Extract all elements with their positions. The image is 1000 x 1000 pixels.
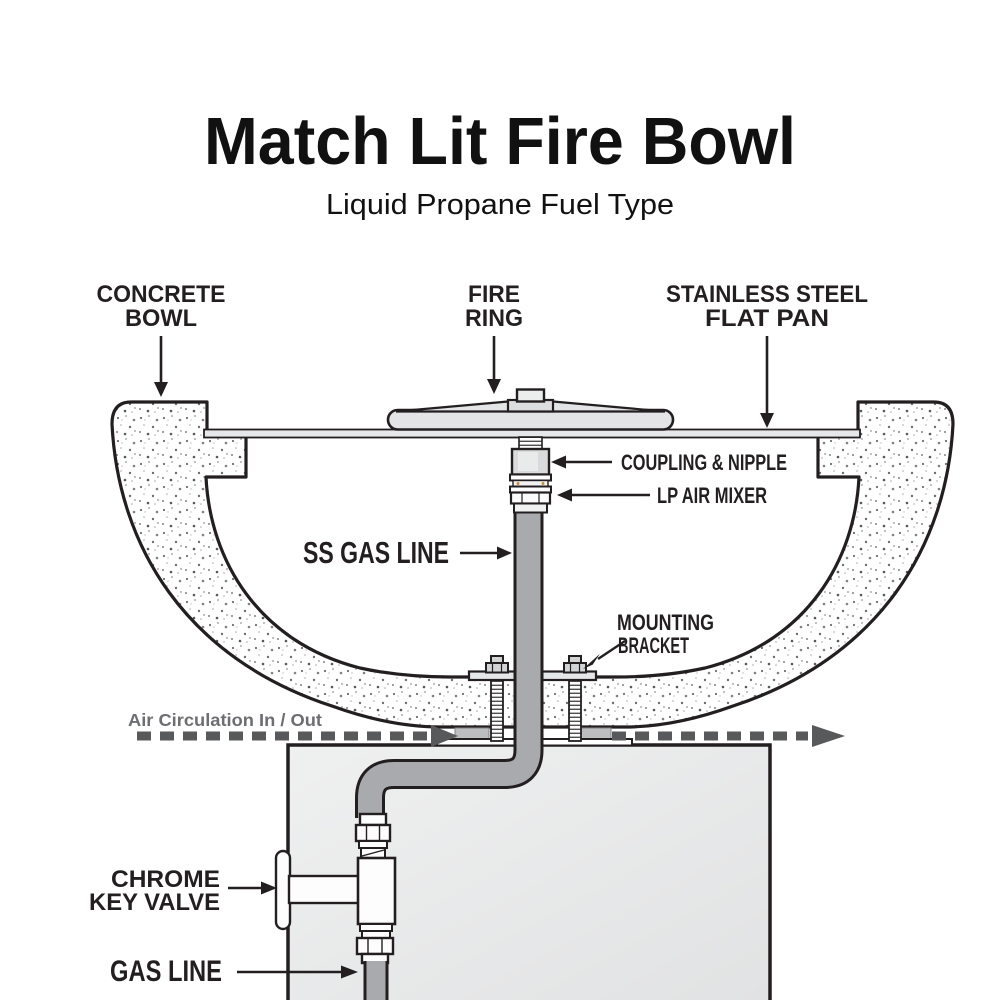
air-arrowhead-right [812, 725, 845, 747]
concrete-bowl-label-line2: BOWL [125, 305, 197, 332]
gas-line-label: GAS LINE [110, 955, 222, 988]
threaded-rod-left [491, 679, 503, 741]
chrome-key-valve-label-line2: KEY VALVE [89, 889, 220, 916]
lp-air-mixer-collar [514, 504, 547, 513]
valve-ring-a [359, 841, 387, 848]
flat-pan-label-line1: STAINLESS STEEL [666, 281, 868, 308]
fire-ring-capsule [388, 410, 673, 430]
valve-body [358, 858, 395, 924]
mixer-washer-top [510, 475, 551, 481]
lp-air-mixer-label: LP AIR MIXER [657, 483, 767, 508]
threaded-rod-right [569, 679, 581, 741]
mounting-bracket-label-line1: MOUNTING [617, 610, 714, 635]
air-circulation-label: Air Circulation In / Out [128, 710, 322, 730]
mounting-bracket-label-line2: BRACKET [618, 633, 689, 658]
fire-ring-label-line2: RING [465, 305, 523, 332]
brass-dot-right [542, 482, 545, 485]
fire-ring-hub-cap [517, 390, 544, 402]
page-subtitle: Liquid Propane Fuel Type [326, 189, 674, 221]
flat-pan-label-line2: FLAT PAN [705, 305, 829, 332]
valve-lower-hex-nut [357, 938, 393, 954]
bolt-nut-right [564, 663, 586, 673]
fire-bowl-diagram: Match Lit Fire Bowl Liquid Propane Fuel … [0, 0, 1000, 1000]
ss-gas-line-label: SS GAS LINE [303, 535, 449, 570]
page-title: Match Lit Fire Bowl [204, 104, 796, 179]
valve-upper-collar [360, 814, 386, 825]
valve-upper-hex-nut [356, 825, 390, 841]
bolt-nut-left [486, 663, 508, 673]
brass-dot-left [517, 482, 520, 485]
lp-air-mixer-hex [511, 493, 550, 504]
valve-stem [289, 876, 359, 903]
valve-ring-c [360, 924, 392, 931]
fire-ring-label-line1: FIRE [468, 281, 520, 308]
coupling-nipple-label: COUPLING & NIPPLE [621, 450, 787, 475]
diagram-canvas: Match Lit Fire Bowl Liquid Propane Fuel … [0, 0, 1000, 1000]
concrete-bowl-label-line1: CONCRETE [97, 281, 226, 308]
